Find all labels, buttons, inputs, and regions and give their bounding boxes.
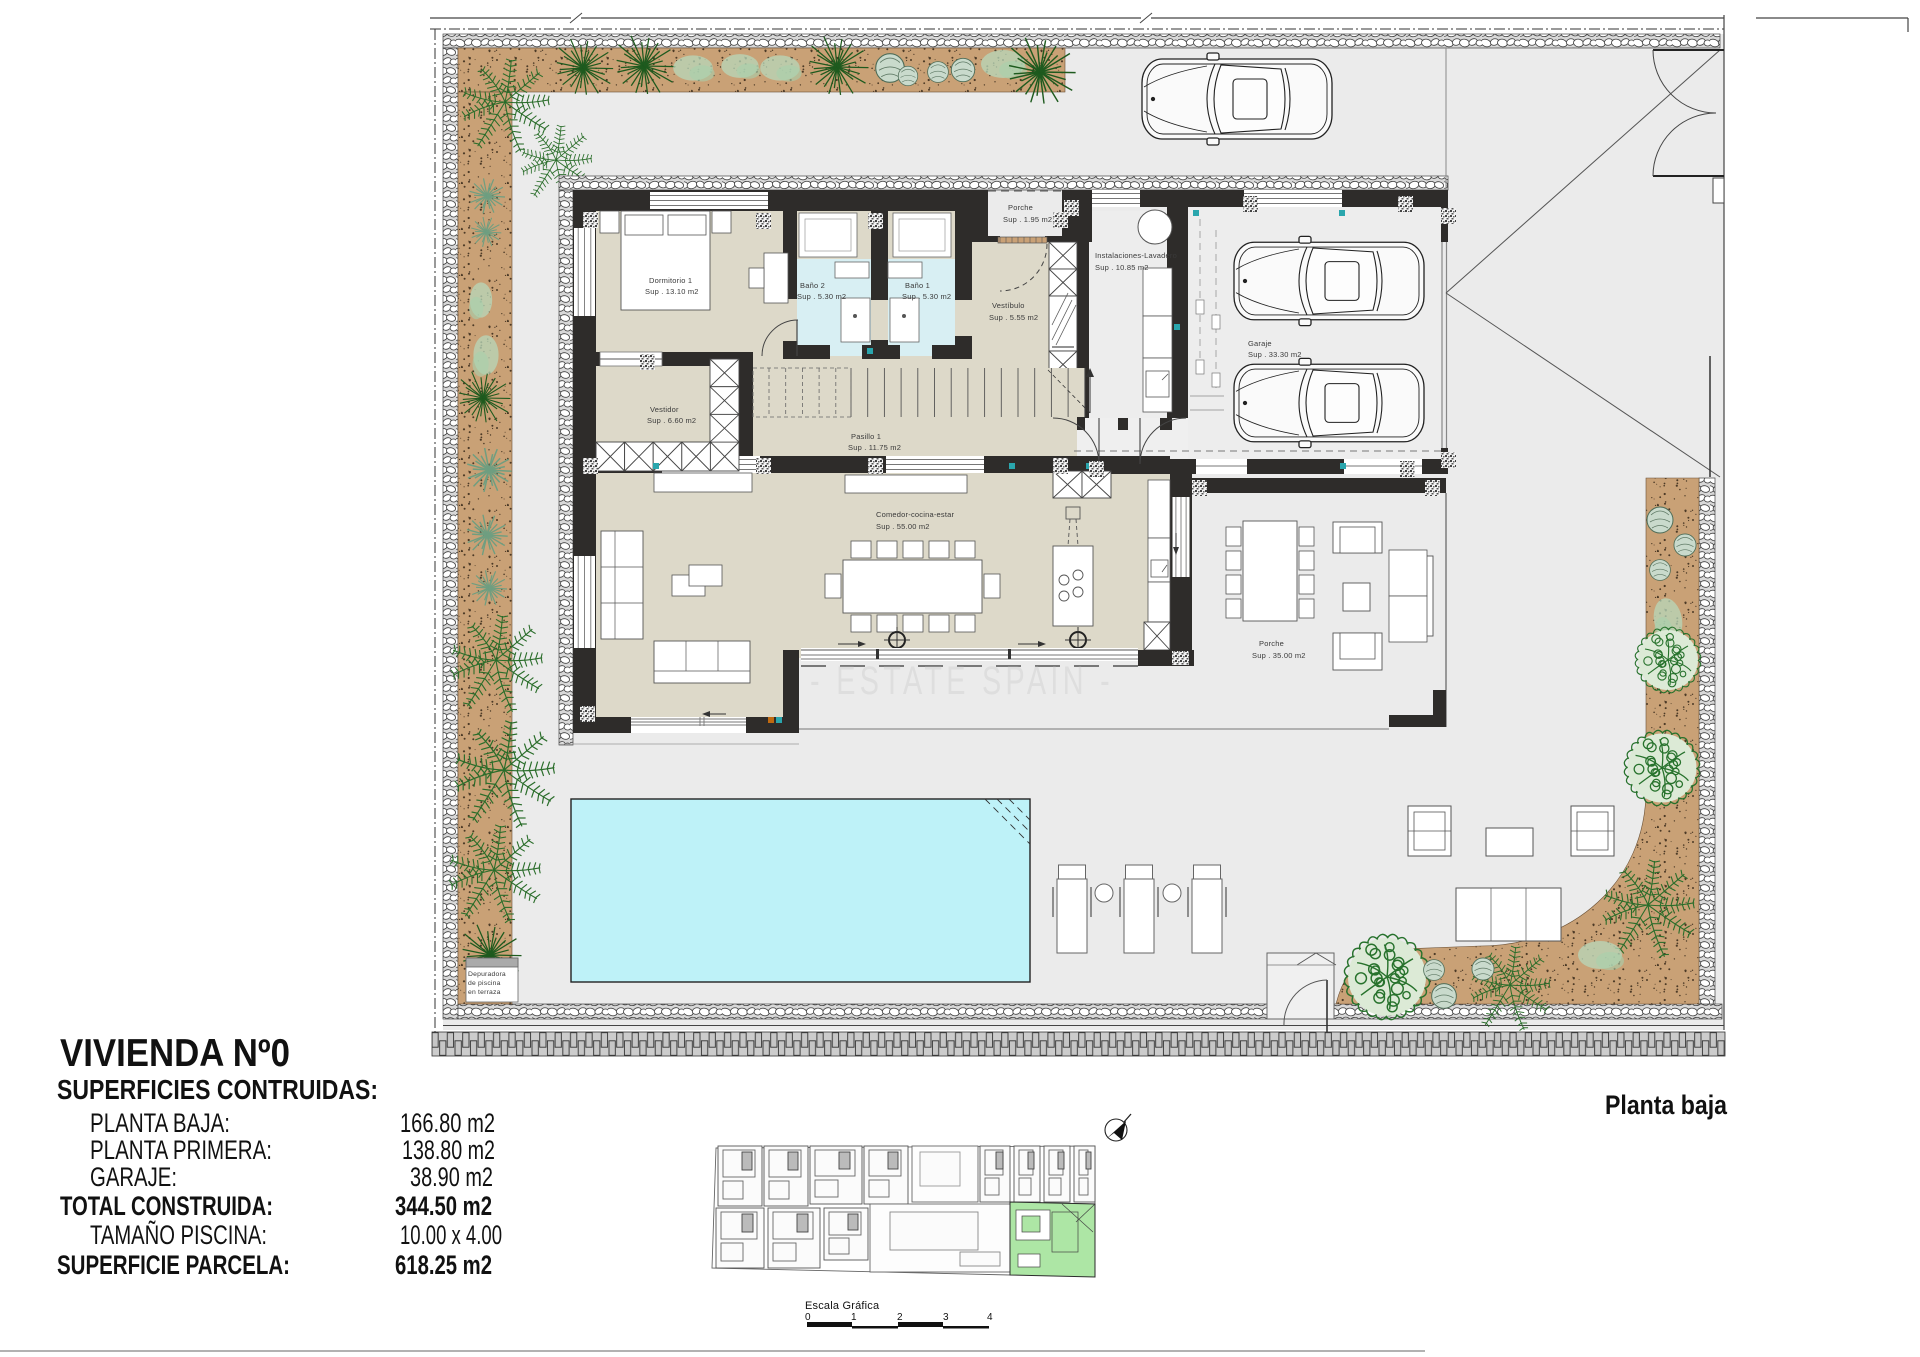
svg-text:Sup . 5.30 m2: Sup . 5.30 m2 [797, 292, 846, 301]
svg-text:Pasillo 1: Pasillo 1 [851, 432, 881, 441]
svg-text:Escala Gráfica: Escala Gráfica [805, 1300, 880, 1312]
svg-text:Garaje: Garaje [1248, 339, 1272, 348]
svg-text:Porche: Porche [1008, 203, 1033, 212]
svg-text:Sup . 6.60 m2: Sup . 6.60 m2 [647, 416, 696, 425]
svg-text:138.80 m2: 138.80 m2 [402, 1135, 495, 1165]
svg-text:618.25 m2: 618.25 m2 [395, 1250, 492, 1280]
svg-text:Sup . 5.30 m2: Sup . 5.30 m2 [902, 292, 951, 301]
svg-text:PLANTA BAJA:: PLANTA BAJA: [90, 1108, 230, 1138]
svg-text:166.80 m2: 166.80 m2 [400, 1108, 495, 1138]
svg-text:de piscina: de piscina [468, 980, 501, 987]
svg-text:Vestíbulo: Vestíbulo [992, 301, 1025, 310]
svg-text:SUPERFICIE PARCELA:: SUPERFICIE PARCELA: [57, 1250, 290, 1280]
svg-text:VIVIENDA Nº0: VIVIENDA Nº0 [60, 1032, 290, 1075]
svg-text:Sup . 35.00 m2: Sup . 35.00 m2 [1252, 651, 1306, 660]
svg-text:Vestidor: Vestidor [650, 405, 679, 414]
svg-text:Comedor-cocina-estar: Comedor-cocina-estar [876, 510, 954, 519]
svg-text:Sup . 5.55 m2: Sup . 5.55 m2 [989, 313, 1038, 322]
svg-text:Sup . 10.85 m2: Sup . 10.85 m2 [1095, 263, 1149, 272]
svg-text:344.50 m2: 344.50 m2 [395, 1191, 492, 1221]
svg-text:4: 4 [987, 1312, 993, 1323]
svg-text:0: 0 [805, 1312, 811, 1323]
svg-text:Dormitorio 1: Dormitorio 1 [649, 276, 692, 285]
svg-text:en terraza: en terraza [468, 989, 501, 996]
svg-text:SUPERFICIES CONTRUIDAS:: SUPERFICIES CONTRUIDAS: [57, 1074, 378, 1105]
svg-text:Baño 1: Baño 1 [905, 281, 930, 290]
svg-text:38.90 m2: 38.90 m2 [410, 1162, 493, 1192]
svg-text:Depuradora: Depuradora [468, 971, 506, 978]
svg-text:3: 3 [943, 1312, 949, 1323]
svg-text:TAMAÑO PISCINA:: TAMAÑO PISCINA: [90, 1219, 267, 1250]
svg-text:Sup . 33.30 m2: Sup . 33.30 m2 [1248, 350, 1302, 359]
svg-text:2: 2 [897, 1312, 903, 1323]
svg-text:Sup . 1.95 m2: Sup . 1.95 m2 [1003, 215, 1052, 224]
svg-text:GARAJE:: GARAJE: [90, 1162, 177, 1192]
svg-text:Sup . 11.75 m2: Sup . 11.75 m2 [848, 443, 901, 452]
svg-text:Sup . 13.10 m2: Sup . 13.10 m2 [645, 287, 699, 296]
svg-text:Porche: Porche [1259, 639, 1284, 648]
svg-text:Baño 2: Baño 2 [800, 281, 825, 290]
svg-text:TOTAL CONSTRUIDA:: TOTAL CONSTRUIDA: [60, 1191, 273, 1221]
svg-text:PLANTA PRIMERA:: PLANTA PRIMERA: [90, 1135, 272, 1165]
svg-text:Sup . 55.00 m2: Sup . 55.00 m2 [876, 522, 930, 531]
svg-text:10.00 x 4.00: 10.00 x 4.00 [400, 1220, 502, 1250]
svg-text:Planta baja: Planta baja [1605, 1090, 1728, 1120]
svg-text:1: 1 [851, 1312, 857, 1323]
svg-text:- ESTATE SPAIN -: - ESTATE SPAIN - [810, 659, 1114, 703]
svg-text:Instalaciones-Lavadero: Instalaciones-Lavadero [1095, 251, 1177, 260]
